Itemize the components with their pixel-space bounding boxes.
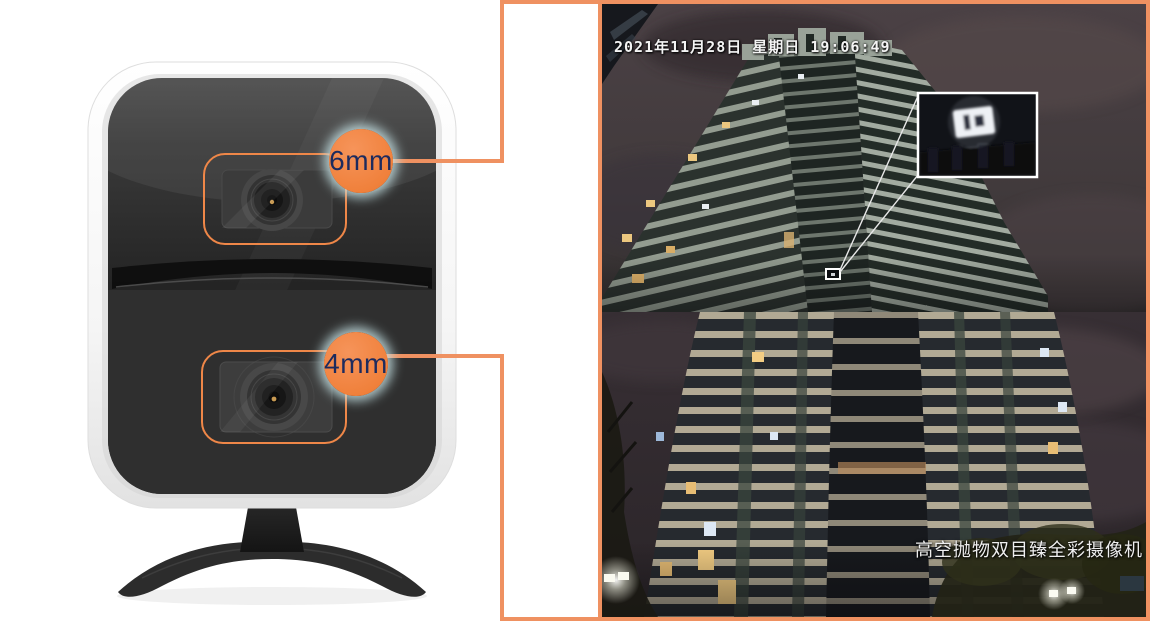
detection-marker-box [826, 269, 840, 279]
camera-product-image [82, 56, 462, 606]
signboard [1120, 576, 1144, 591]
connector-6mm-to-panel [500, 0, 602, 4]
connector-4mm-to-panel [500, 617, 602, 621]
timestamp-overlay: 2021年11月28日 星期日 19:06:49 [614, 36, 891, 57]
lens-callout-6mm: 6mm [329, 129, 393, 193]
falling-object [952, 106, 995, 139]
camera-stand [118, 496, 426, 597]
detection-zoom-inset [918, 93, 1037, 177]
connector-4mm-vertical [500, 354, 504, 621]
surveillance-panel: 2021年11月28日 星期日 19:06:49 [598, 0, 1150, 621]
promo-page: 6mm 4mm [0, 0, 1150, 621]
lens-outline-6mm [203, 153, 347, 245]
lens-callout-4mm-label: 4mm [324, 348, 388, 380]
lens-callout-4mm: 4mm [324, 332, 388, 396]
surveillance-view-upward: 2021年11月28日 星期日 19:06:49 [602, 4, 1146, 312]
connector-6mm-vertical [500, 0, 504, 163]
camera-name-overlay: 高空抛物双目臻全彩摄像机 [915, 536, 1143, 562]
surveillance-view-wide: 高空抛物双目臻全彩摄像机 [602, 312, 1146, 617]
camera-illustration [82, 56, 462, 606]
lens-callout-6mm-label: 6mm [329, 145, 393, 177]
camera-shadow [117, 587, 427, 605]
connector-4mm-horizontal [375, 354, 504, 358]
wide-night-scene [602, 312, 1146, 617]
connector-6mm-horizontal [380, 159, 504, 163]
